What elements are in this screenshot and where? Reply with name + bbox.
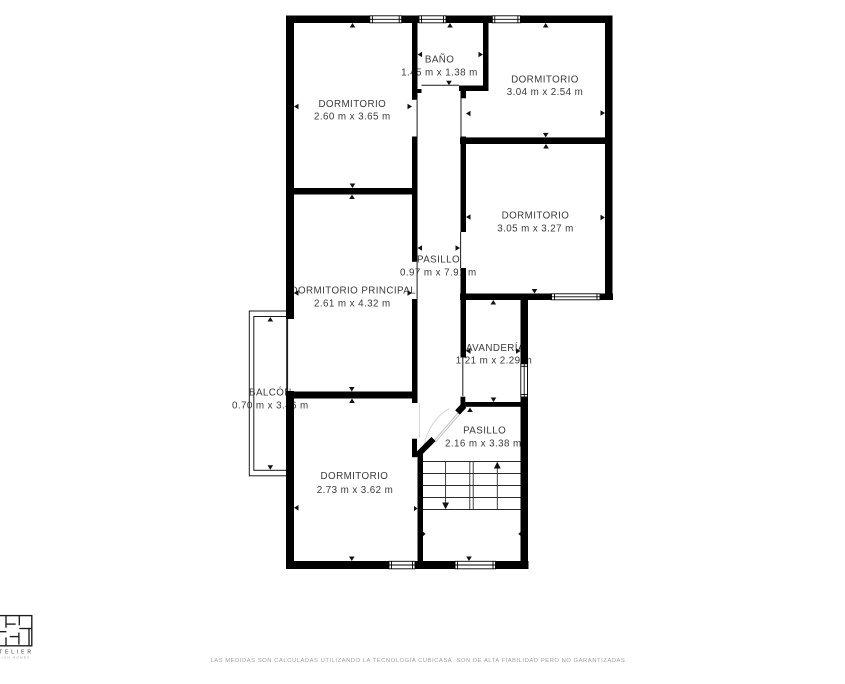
- svg-text:TELIER: TELIER: [0, 649, 34, 655]
- svg-text:DORMITORIO: DORMITORIO: [321, 471, 389, 482]
- svg-text:2.61 m x 4.32 m: 2.61 m x 4.32 m: [314, 299, 391, 310]
- svg-text:DORMITORIO: DORMITORIO: [511, 75, 579, 86]
- svg-text:2.73 m x 3.62 m: 2.73 m x 3.62 m: [317, 485, 394, 496]
- svg-text:DORMITORIO: DORMITORIO: [502, 211, 570, 222]
- svg-text:2.16 m x 3.38 m: 2.16 m x 3.38 m: [445, 438, 522, 449]
- svg-text:DORMITORIO: DORMITORIO: [318, 99, 386, 110]
- svg-text:BALCÓN: BALCÓN: [249, 387, 292, 398]
- svg-text:BAÑO: BAÑO: [425, 55, 454, 66]
- svg-text:PASILLO: PASILLO: [417, 254, 460, 265]
- svg-text:PASILLO: PASILLO: [463, 425, 506, 436]
- svg-text:LAS MEDIDAS SON CALCULADAS UTI: LAS MEDIDAS SON CALCULADAS UTILIZANDO LA…: [211, 657, 628, 664]
- svg-text:LISH HOMES: LISH HOMES: [0, 656, 31, 660]
- svg-text:3.04 m x 2.54 m: 3.04 m x 2.54 m: [507, 87, 584, 98]
- svg-text:DORMITORIO PRINCIPAL: DORMITORIO PRINCIPAL: [290, 286, 416, 297]
- svg-text:3.05 m x 3.27 m: 3.05 m x 3.27 m: [497, 223, 574, 234]
- svg-text:2.60 m x 3.65 m: 2.60 m x 3.65 m: [314, 112, 391, 123]
- svg-text:0.70 m x 3.46 m: 0.70 m x 3.46 m: [232, 401, 309, 412]
